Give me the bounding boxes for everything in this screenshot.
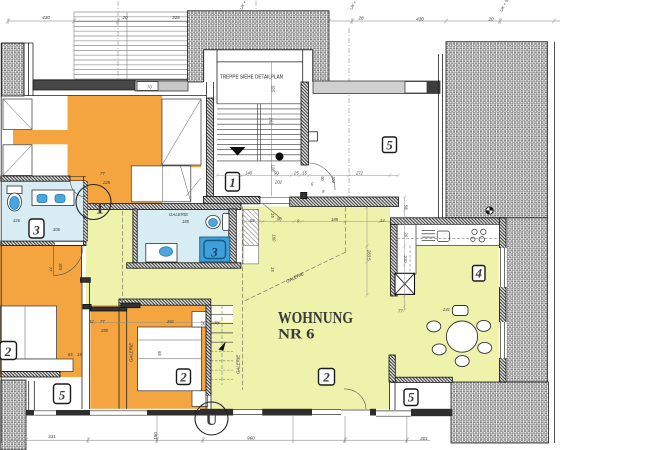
svg-text:4: 4 <box>474 266 482 281</box>
svg-text:5: 5 <box>386 138 393 153</box>
svg-text:T: T <box>95 201 106 218</box>
svg-text:77: 77 <box>48 267 53 272</box>
svg-text:25: 25 <box>293 171 299 176</box>
svg-text:GALERIE: GALERIE <box>129 343 134 362</box>
svg-text:301: 301 <box>420 436 428 441</box>
svg-text:NR 6: NR 6 <box>278 327 315 343</box>
svg-text:320: 320 <box>271 85 276 93</box>
svg-text:70: 70 <box>147 85 152 90</box>
svg-text:160: 160 <box>272 234 277 242</box>
svg-text:GALERIE: GALERIE <box>169 212 188 217</box>
svg-text:225: 225 <box>102 180 111 185</box>
svg-text:3: 3 <box>210 245 218 260</box>
svg-text:185: 185 <box>182 219 190 224</box>
svg-text:5: 5 <box>59 388 66 403</box>
svg-text:15: 15 <box>270 213 275 218</box>
svg-text:15: 15 <box>302 171 307 176</box>
svg-text:90: 90 <box>274 171 279 176</box>
svg-text:WOHNUNG: WOHNUNG <box>278 308 353 327</box>
svg-text:69: 69 <box>250 218 255 223</box>
svg-text:326: 326 <box>13 218 21 223</box>
svg-text:65: 65 <box>68 352 73 357</box>
svg-text:26: 26 <box>404 232 409 238</box>
svg-text:285: 285 <box>100 328 109 333</box>
svg-text:331: 331 <box>48 434 56 439</box>
svg-text:5: 5 <box>408 390 415 405</box>
svg-text:150: 150 <box>153 432 158 440</box>
svg-text:77: 77 <box>100 171 105 176</box>
svg-text:272: 272 <box>355 171 364 176</box>
svg-text:2: 2 <box>322 370 330 385</box>
svg-text:U: U <box>206 412 218 429</box>
svg-text:15: 15 <box>270 267 275 272</box>
svg-text:162: 162 <box>269 118 274 126</box>
svg-text:326: 326 <box>172 15 180 20</box>
svg-text:15: 15 <box>77 352 82 357</box>
svg-text:77: 77 <box>398 309 403 314</box>
svg-text:261: 261 <box>166 319 174 324</box>
svg-text:28: 28 <box>357 16 364 21</box>
svg-text:210: 210 <box>403 255 408 264</box>
svg-text:263.5: 263.5 <box>366 249 371 261</box>
svg-text:20: 20 <box>121 15 128 20</box>
svg-text:58: 58 <box>404 205 409 210</box>
svg-text:1: 1 <box>229 175 236 190</box>
svg-text:GALERIE: GALERIE <box>236 355 241 374</box>
svg-text:140: 140 <box>245 171 253 176</box>
svg-text:90: 90 <box>277 217 282 222</box>
svg-text:305: 305 <box>58 263 63 271</box>
svg-text:3: 3 <box>32 223 40 238</box>
svg-text:960: 960 <box>247 436 255 441</box>
svg-text:189: 189 <box>331 217 339 222</box>
svg-text:95: 95 <box>157 351 162 356</box>
svg-text:15: 15 <box>200 321 205 326</box>
svg-text:77: 77 <box>100 319 105 324</box>
svg-text:430: 430 <box>42 15 50 20</box>
svg-text:TREPPE SIEHE DETAILPLAN: TREPPE SIEHE DETAILPLAN <box>220 75 283 81</box>
svg-text:306: 306 <box>53 227 61 232</box>
svg-text:50: 50 <box>320 176 325 181</box>
svg-text:430: 430 <box>416 17 424 22</box>
svg-text:2: 2 <box>179 370 187 385</box>
svg-text:14: 14 <box>380 218 385 223</box>
svg-text:70: 70 <box>214 320 219 325</box>
svg-text:202: 202 <box>331 175 336 184</box>
svg-text:2: 2 <box>4 344 12 359</box>
svg-text:202: 202 <box>274 180 283 185</box>
svg-text:241: 241 <box>442 307 450 312</box>
svg-text:20: 20 <box>487 17 494 22</box>
svg-text:12: 12 <box>89 319 94 324</box>
